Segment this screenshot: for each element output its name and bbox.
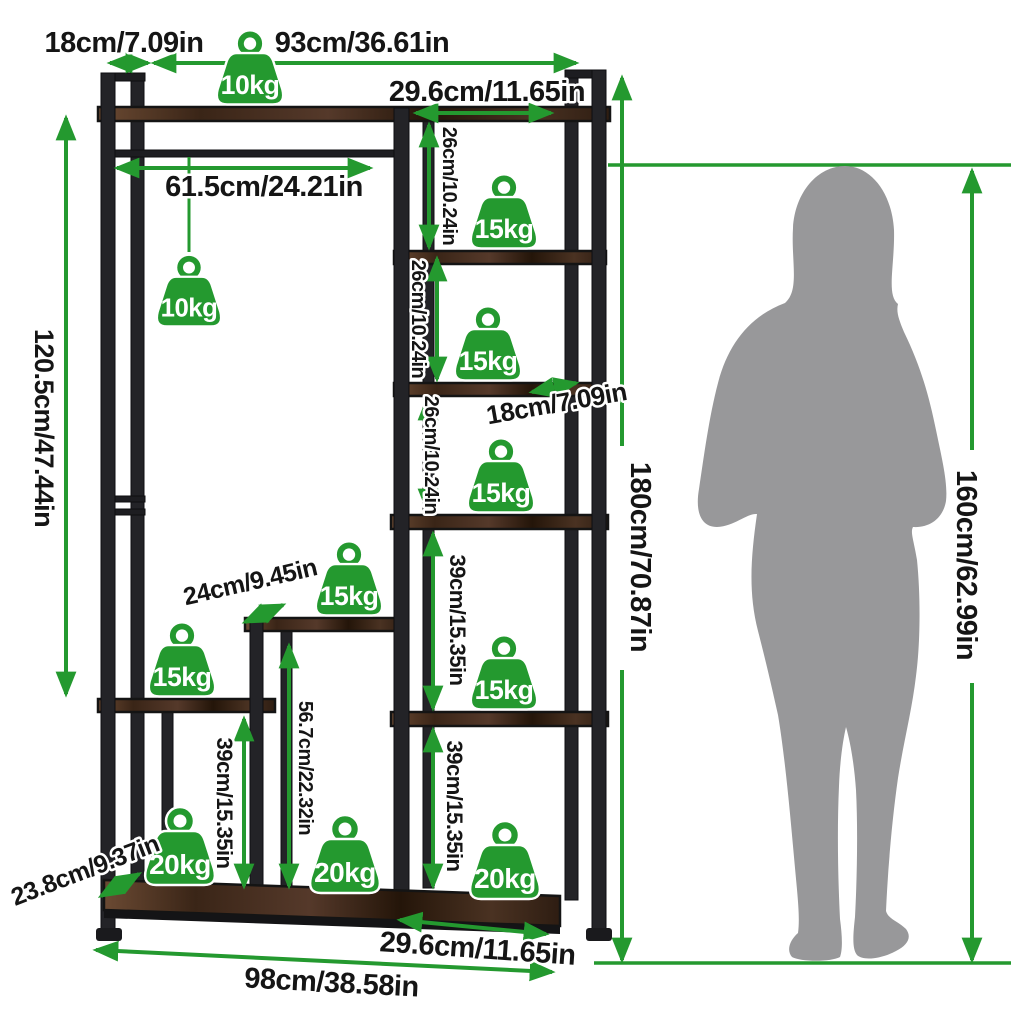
dim-top-main-label: 93cm/36.61in	[275, 27, 450, 59]
dim-step-depth-label: 24cm/9.45in	[181, 553, 320, 611]
dim-top-side-label: 18cm/7.09in	[45, 27, 204, 59]
dim-person-height-label: 160cm/62.99in	[950, 470, 982, 660]
weight-badge-label: 15kg	[320, 581, 379, 611]
weight-badge-base-middle: 20kg	[310, 815, 380, 893]
rack-leg	[592, 70, 606, 929]
dim-gap26-lower-label: 26cm/10.24in	[420, 396, 442, 515]
dim-rod-length-label: 61.5cm/24.21in	[165, 171, 363, 203]
diagram-canvas: 10kg 10kg 15kg 15kg 15kg 15kg 15kg 15kg …	[0, 0, 1018, 1018]
weight-badge-label: 10kg	[221, 70, 280, 100]
dim-step-height-label: 56.7cm/22.32in	[294, 701, 316, 835]
left-shelf-board	[98, 699, 275, 712]
rack-leg	[394, 108, 409, 892]
weight-badge-step-shelf: 15kg	[316, 541, 382, 615]
dim-gap26-top-label: 26cm/10.24in	[438, 127, 460, 246]
weight-badge-label: 15kg	[459, 346, 518, 376]
weight-badge-tower-shelf-2: 15kg	[455, 306, 521, 380]
weight-badge-label: 20kg	[474, 863, 536, 894]
weight-badge-tower-shelf-1: 15kg	[471, 174, 537, 248]
weight-badge-label: 15kg	[475, 214, 534, 244]
dim-hanging-height-label: 120.5cm/47.44in	[29, 329, 59, 527]
weight-badge-label: 15kg	[472, 478, 531, 508]
weight-badge-hanging-rod: 10kg	[157, 255, 221, 327]
weight-badge-label: 10kg	[161, 294, 218, 322]
rack-leg	[101, 73, 115, 929]
step-shelf-board	[245, 618, 404, 631]
weight-badge-label: 15kg	[153, 662, 212, 692]
weight-badge-tower-shelf-3: 15kg	[468, 438, 534, 512]
weight-badge-label: 15kg	[475, 675, 534, 705]
dim-gap39-left-label: 39cm/15.35in	[212, 738, 237, 869]
foot-pad	[586, 928, 612, 941]
person-silhouette	[698, 166, 947, 961]
weight-badge-base-right: 20kg	[470, 821, 540, 899]
weight-badge-top-shelf: 10kg	[217, 30, 283, 104]
dim-total-height-label: 180cm/70.87in	[624, 462, 656, 652]
weight-badge-tower-shelf-4: 15kg	[471, 635, 537, 709]
dim-base-width-label: 98cm/38.58in	[243, 962, 419, 1003]
dim-gap26-mid-label: 26cm/10.24in	[407, 260, 429, 379]
weight-badge-left-shelf: 15kg	[149, 622, 215, 696]
foot-pad	[96, 928, 122, 941]
rack-post	[565, 70, 578, 900]
rack-leg	[250, 618, 263, 892]
dim-top-depth-label: 29.6cm/11.65in	[389, 76, 585, 108]
tower-shelf-board	[391, 712, 608, 726]
weight-badge-label: 20kg	[314, 857, 376, 888]
tower-shelf-board	[391, 515, 608, 529]
weight-badges: 10kg 10kg 15kg 15kg 15kg 15kg 15kg 15kg …	[145, 30, 540, 899]
rack-post	[131, 73, 144, 895]
dim-gap39-upper-label: 39cm/15.35in	[445, 555, 470, 686]
dimension-diagram: 10kg 10kg 15kg 15kg 15kg 15kg 15kg 15kg …	[0, 0, 1018, 1018]
hanging-rod	[114, 150, 399, 157]
dim-gap39-lower-label: 39cm/15.35in	[442, 741, 467, 872]
